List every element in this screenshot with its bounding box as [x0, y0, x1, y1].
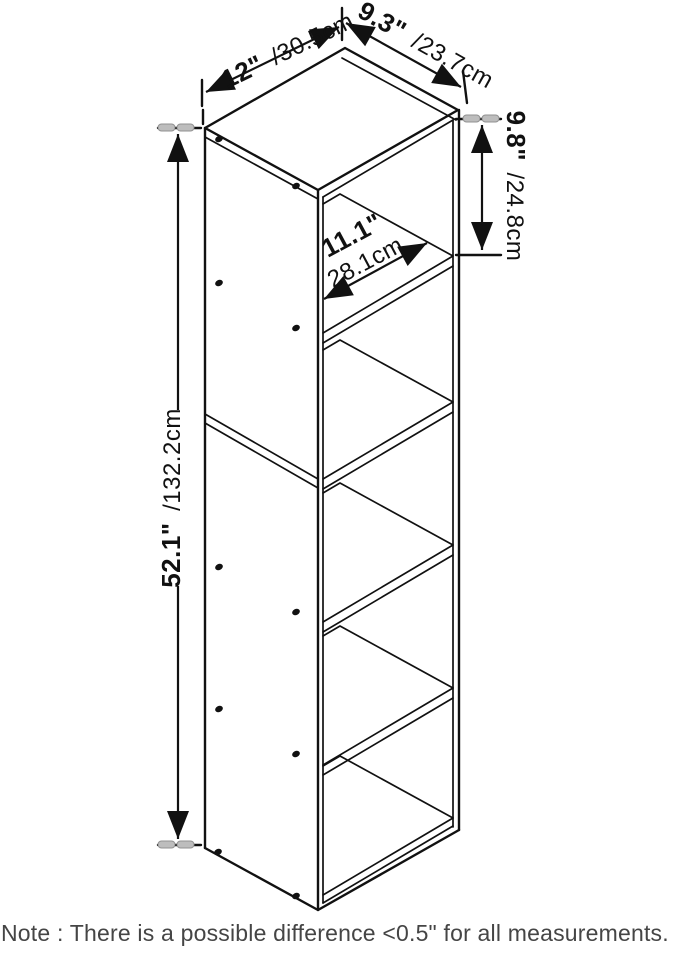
shelf-unit-outline — [205, 48, 459, 910]
shelf-boards — [323, 194, 453, 903]
shelf-line-drawing: 12" /30.5cm 9.3" /23.7cm — [0, 0, 679, 958]
dim-total-height: 52.1" /132.2cm — [153, 124, 201, 848]
cam-holes — [213, 135, 301, 901]
dim-total-height-label: 52.1" /132.2cm — [156, 408, 186, 588]
dim-depth: 9.3" /23.7cm — [346, 0, 500, 103]
dim-depth-label: 9.3" /23.7cm — [353, 0, 499, 94]
dim-cubby-height: 9.8" /24.8cm — [456, 111, 531, 262]
dim-cubby-height-label: 9.8" /24.8cm — [501, 111, 531, 262]
dim-width: 12" /30.5cm — [202, 5, 358, 124]
product-dimension-diagram: 12" /30.5cm 9.3" /23.7cm — [0, 0, 679, 958]
measurement-note: Note : There is a possible difference <0… — [1, 920, 679, 947]
dim-interior-width: 11.1" 28.1cm — [316, 207, 427, 299]
panel-thickness-lines — [205, 58, 456, 903]
